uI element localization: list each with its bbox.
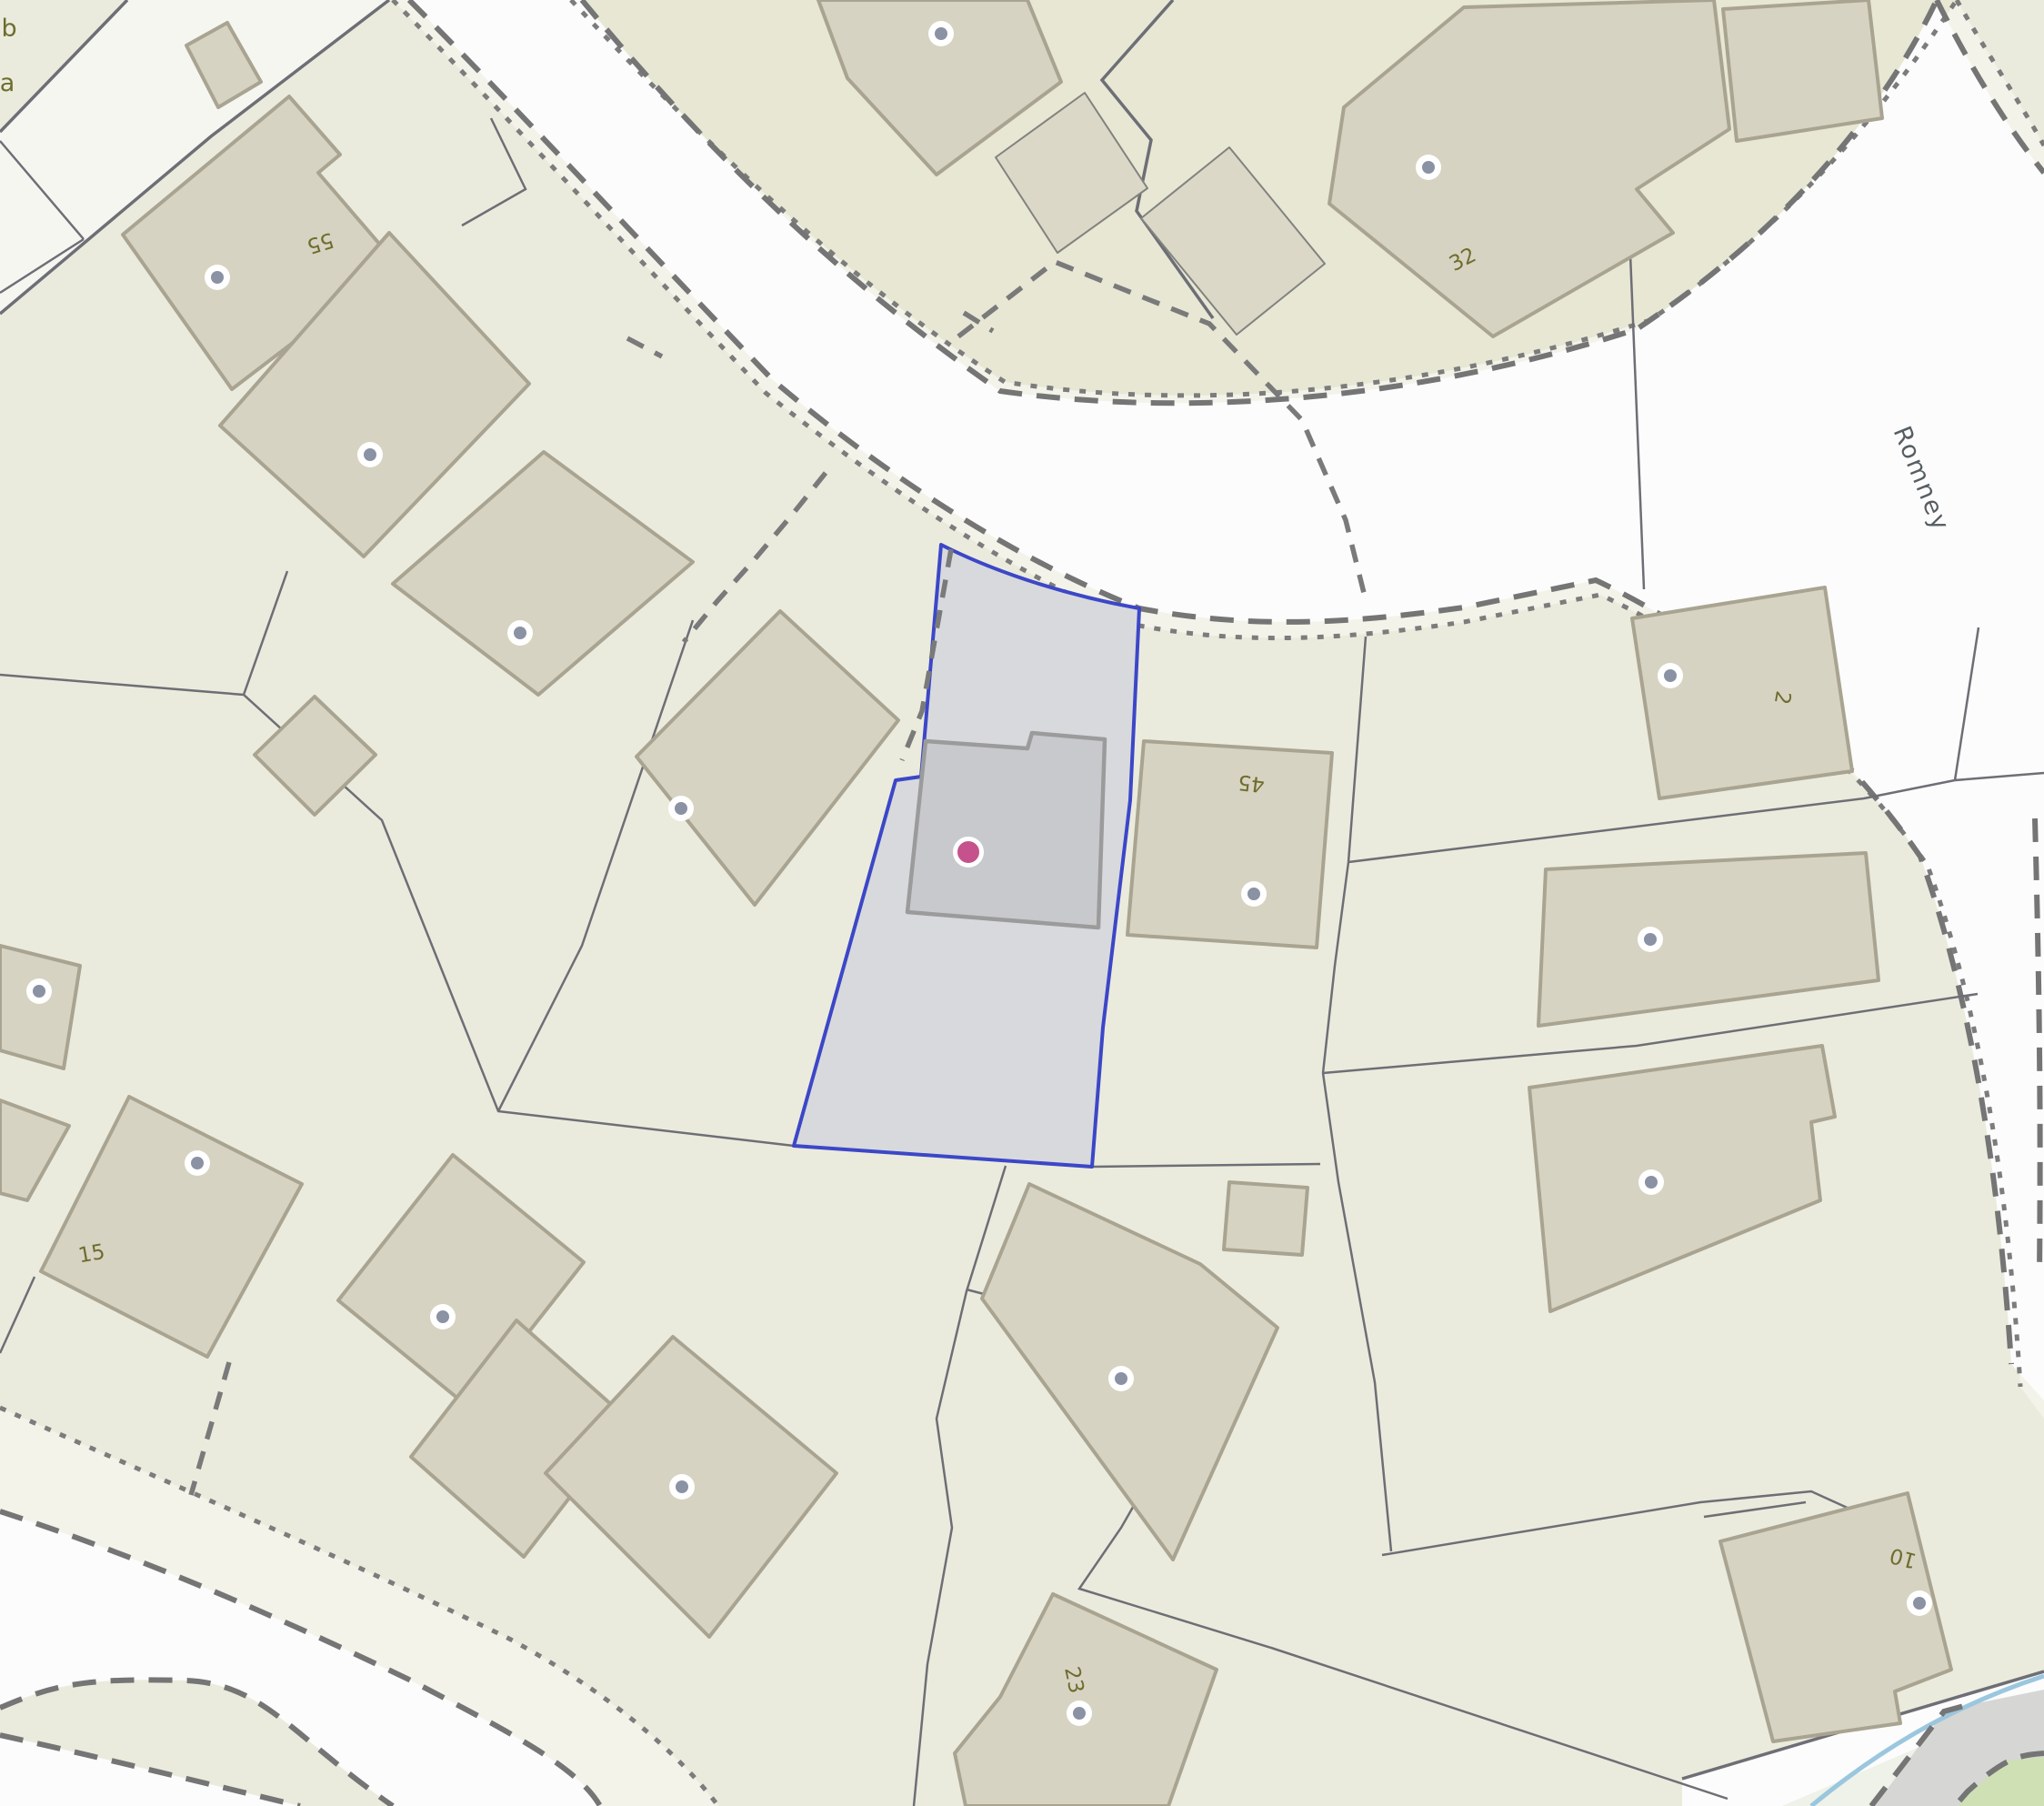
address-marker[interactable] xyxy=(928,21,954,46)
location-marker-layer xyxy=(956,839,982,866)
map-canvas[interactable]: 5532452152310baRomney xyxy=(0,0,2044,1806)
location-marker[interactable] xyxy=(956,839,982,866)
address-marker[interactable] xyxy=(1907,1590,1932,1616)
house-number-label: 45 xyxy=(1237,769,1266,796)
address-marker[interactable] xyxy=(205,265,230,290)
building-45 xyxy=(1127,741,1332,948)
map-viewport[interactable]: 5532452152310baRomney xyxy=(0,0,2044,1806)
house-number-label: 15 xyxy=(76,1240,106,1269)
address-marker[interactable] xyxy=(1108,1366,1134,1391)
address-marker[interactable] xyxy=(668,796,694,821)
address-marker[interactable] xyxy=(1067,1701,1092,1726)
plot-letter-label: b xyxy=(1,15,16,43)
building-2 xyxy=(1632,587,1852,798)
address-marker[interactable] xyxy=(669,1474,695,1500)
plot-letter-label: a xyxy=(0,69,15,97)
address-marker[interactable] xyxy=(1241,881,1267,907)
address-marker[interactable] xyxy=(1638,927,1663,952)
address-marker[interactable] xyxy=(1658,663,1683,688)
address-marker[interactable] xyxy=(357,442,383,467)
address-marker[interactable] xyxy=(507,620,533,646)
address-marker[interactable] xyxy=(1416,155,1441,180)
address-marker[interactable] xyxy=(1638,1169,1664,1195)
address-marker[interactable] xyxy=(26,978,52,1004)
address-marker[interactable] xyxy=(430,1304,456,1329)
selected-building xyxy=(907,733,1105,928)
address-marker[interactable] xyxy=(185,1150,210,1176)
